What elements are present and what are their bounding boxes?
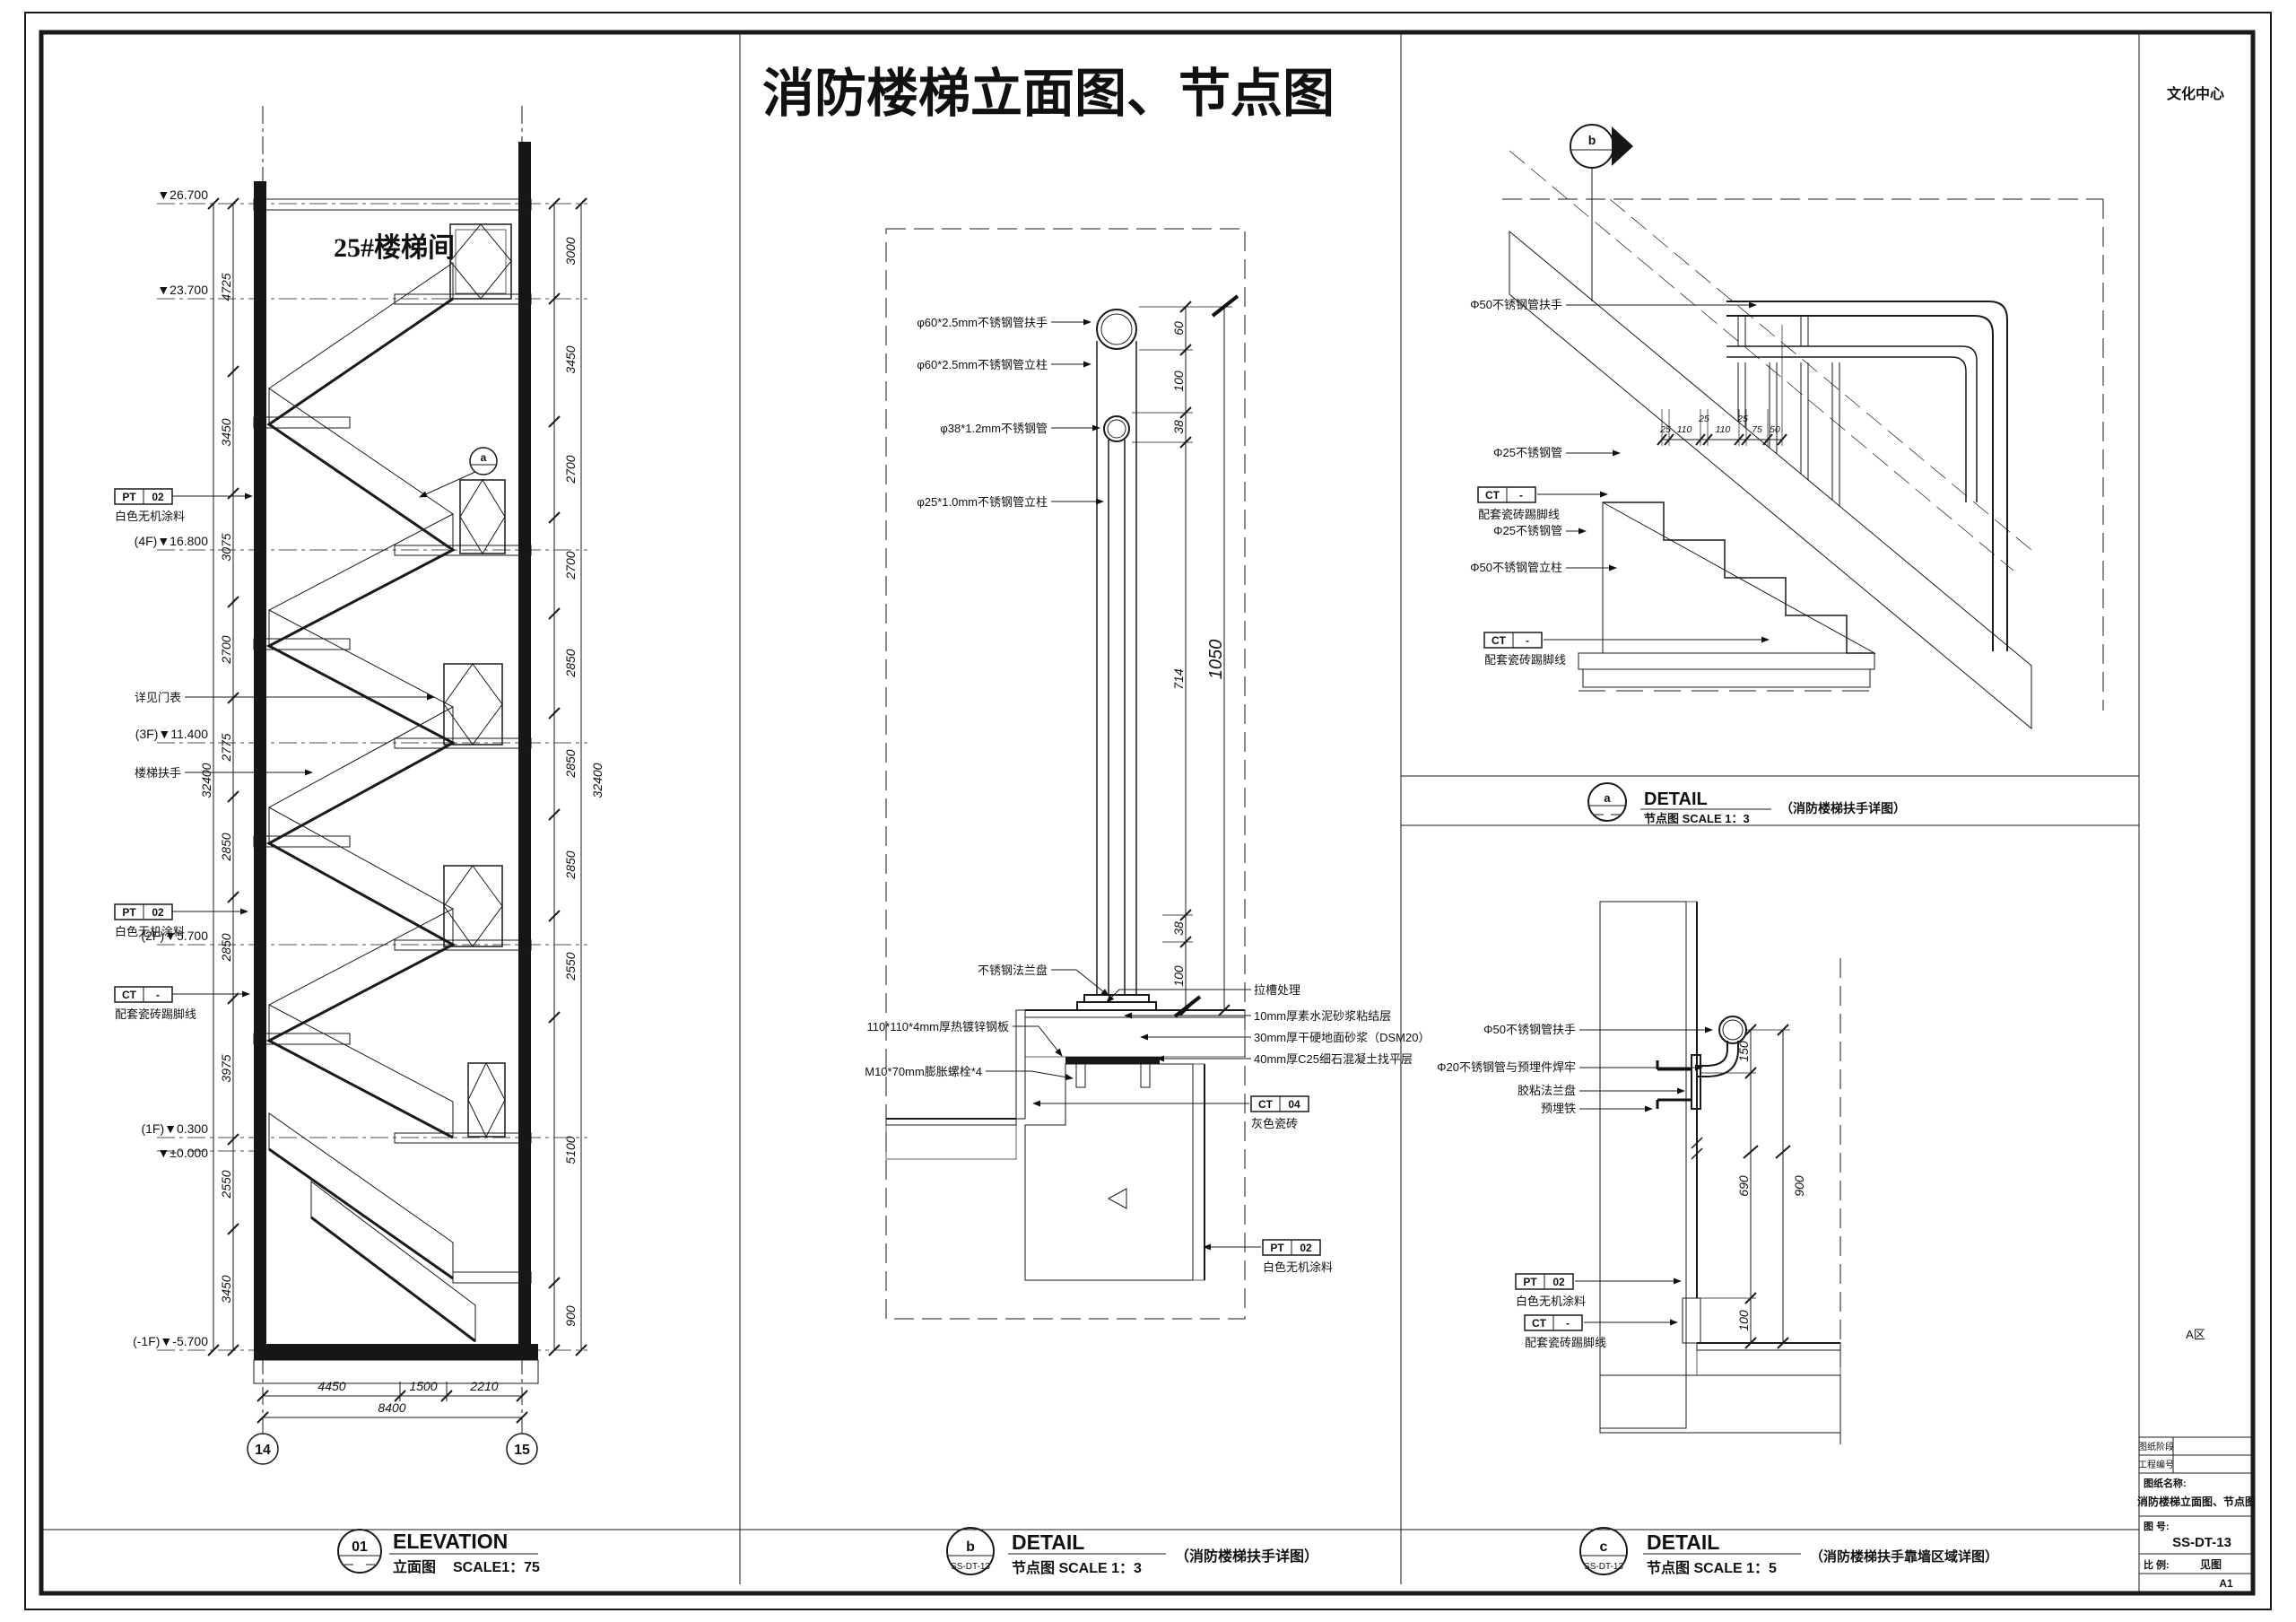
elevation-title: 01 ELEVATION 立面图 SCALE1：75 [338,1530,540,1575]
callout-label: 预埋铁 [1541,1102,1576,1115]
grid-number: 15 [514,1443,530,1458]
sheet-canvas: 消防楼梯立面图、节点图 [0,0,2296,1622]
dim-label: 25 [1698,414,1709,424]
dim-label: 2700 [563,551,578,580]
finish-tag-desc: 白色无机涂料 [115,510,185,523]
dim-label: 900 [563,1305,578,1327]
dim-label: 3450 [219,1275,233,1303]
finish-tag-code: CT [122,989,137,1001]
field-label: 图纸阶段 [2138,1441,2174,1452]
view-title-note: （消防楼梯扶手靠墙区域详图） [1810,1548,1998,1565]
dim-label: 2550 [219,1170,233,1199]
field-label: 比 例: [2144,1558,2170,1571]
finish-tag-num: 02 [1552,1276,1565,1288]
finish-tag-desc: 配套瓷砖踢脚线 [115,1007,196,1021]
floor-slabs [395,294,531,1143]
level-mark: (4F)▼16.800 [135,534,209,548]
handrail [1726,301,2007,651]
finish-tag-desc: 灰色瓷砖 [1251,1117,1298,1130]
elevator-doors [444,224,511,1137]
dim-label: 3000 [563,237,578,265]
wall-section [1600,902,1702,1428]
grid-bubbles: 14 15 [248,1434,537,1464]
finish-tag-code: PT [1270,1242,1284,1254]
view-title-en: DETAIL [1012,1530,1084,1554]
finish-tag-code: CT [1485,489,1500,501]
level-mark: (3F)▼11.400 [135,727,209,741]
dim-label: 2850 [219,833,233,861]
view-title-cn: 节点图 SCALE 1：5 [1647,1559,1777,1576]
finish-tag-desc: 配套瓷砖踢脚线 [1484,653,1566,667]
callout-label: Φ20不锈钢管与预埋件焊牢 [1437,1060,1576,1074]
finish-tag-desc: 白色无机涂料 [1516,1295,1586,1308]
roof-slab [254,199,531,210]
project-name: 文化中心 [2167,85,2224,102]
dim-label: 690 [1736,1175,1751,1197]
finish-tag-num: 02 [152,491,164,503]
finish-tag-num: - [1526,634,1529,647]
dim-label: 100 [1171,371,1186,392]
dim-label: 75 [1752,424,1762,435]
section-flag [1612,126,1633,166]
detail-c-title: c SS-DT-13 DETAIL 节点图 SCALE 1：5 （消防楼梯扶手靠… [1580,1528,1998,1576]
field-label: 图纸名称: [2144,1477,2187,1489]
finish-tag-code: PT [122,906,136,919]
overall-dim: 900 [1792,1175,1806,1197]
right-wall [518,142,531,1350]
callout-label: 胶粘法兰盘 [1518,1084,1576,1097]
room-label: 25#楼梯间 [334,233,455,263]
floor-buildup [886,1010,1245,1280]
dim-label: 38 [1171,921,1186,936]
finish-tag-code: PT [122,491,136,503]
dim-label: 2210 [469,1379,498,1393]
section-bubble: b [1570,125,1633,301]
view-number: 01 [352,1539,368,1555]
title-block: 文化中心 A区 图纸阶段 工程编号 图纸名称: 消防楼梯立面图、节点图 图 号:… [2137,85,2256,1590]
drawing-sheet: 消防楼梯立面图、节点图 [0,0,2296,1622]
callout-label: φ60*2.5mm不锈钢管立柱 [917,358,1048,371]
finish-tag-num: - [156,989,160,1001]
callout-label: Φ50不锈钢管立柱 [1470,561,1562,574]
view-title-en: ELEVATION [393,1530,508,1553]
grid-number: 14 [255,1443,271,1458]
view-title-cn: 节点图 SCALE 1：3 [1012,1559,1142,1576]
dim-label: 1500 [409,1379,437,1393]
base-slab [254,1344,538,1360]
view-ref: SS-DT-13 [951,1562,990,1572]
callout-label: Φ25不锈钢管 [1493,446,1562,459]
finish-tag-desc: 白色无机涂料 [1263,1260,1333,1274]
panel-dividers [740,32,2139,1593]
dim-label: 714 [1171,668,1186,690]
dim-label: 60 [1171,321,1186,336]
view-number: c [1600,1539,1608,1555]
field-label: 工程编号 [2138,1459,2174,1470]
overall-dim: 32400 [590,763,604,798]
level-mark: (-1F)▼-5.700 [133,1334,208,1348]
detail-a-callouts: Φ50不锈钢管扶手 Φ25不锈钢管 CT - 配套瓷砖踢脚线 Φ25不锈钢管 Φ… [1470,298,1769,667]
overall-dim: 8400 [378,1400,405,1415]
dim-label: 110 [1716,424,1731,435]
zone-label: A区 [2186,1328,2205,1341]
dim-label: 3975 [219,1054,233,1082]
field-label: 图 号: [2144,1521,2170,1532]
floor-section [1600,1343,1840,1433]
dim-label: 25 [1736,414,1748,424]
finish-tag-num: 04 [1288,1098,1300,1111]
detail-a-dimensions: 25 110 25 110 25 75 50 [1657,325,1787,446]
stair-flights [269,263,475,1341]
detail-a-band-lines [1401,776,2139,825]
callout-label: φ38*1.2mm不锈钢管 [940,422,1048,435]
dim-label: 38 [1171,420,1186,434]
callout-label: φ25*1.0mm不锈钢管立柱 [917,495,1048,509]
view-title-cn: 节点图 SCALE 1：3 [1644,812,1750,825]
drawing-name: 消防楼梯立面图、节点图 [2137,1495,2256,1508]
elevation-panel: 4725 3450 3075 2700 2775 2850 2850 3975 … [115,106,604,1575]
detail-a-panel: b 25 110 25 110 25 75 50 Φ50不锈钢管扶手 Φ25不锈… [1470,125,2103,825]
landing-slabs [254,417,531,1283]
dim-label: 3075 [219,533,233,561]
level-mark: ▼±0.000 [157,1146,208,1160]
drawing-number: SS-DT-13 [2172,1535,2231,1550]
dim-label: 3450 [563,345,578,373]
view-title-cn: 立面图 [393,1558,436,1575]
dim-label: 150 [1736,1041,1751,1062]
callout-label: 10mm厚素水泥砂浆粘结层 [1254,1009,1391,1023]
callout-label: 拉槽处理 [1254,983,1300,997]
callout-label: 40mm厚C25细石混凝土找平层 [1254,1052,1413,1066]
callout-label: 30mm厚干硬地面砂浆（DSM20） [1254,1031,1430,1044]
dim-label: 4725 [219,273,233,301]
level-mark: ▼23.700 [157,283,208,297]
section-id: b [1588,133,1596,147]
dim-label: 2550 [563,952,578,981]
finish-tag-code: PT [1523,1276,1537,1288]
detail-b-callouts-left: φ60*2.5mm不锈钢管扶手 φ60*2.5mm不锈钢管立柱 φ38*1.2m… [865,316,1109,1078]
finish-tag-num: 02 [1300,1242,1312,1254]
finish-tag-code: CT [1492,634,1507,647]
finish-tag-num: 02 [152,906,164,919]
left-wall [254,181,266,1350]
callout-label: Φ50不锈钢管扶手 [1470,298,1562,311]
dim-label: 50 [1770,424,1780,435]
dim-label: 2700 [219,635,233,664]
sheet-title: 消防楼梯立面图、节点图 [762,65,1335,123]
finish-tag-desc: 配套瓷砖踢脚线 [1478,508,1560,521]
note-rail: 楼梯扶手 [135,766,181,780]
view-title-note: （消防楼梯扶手详图） [1780,801,1906,815]
level-mark: (1F)▼0.300 [141,1121,208,1136]
dim-label: 2850 [563,649,578,677]
dim-label: 110 [1677,424,1692,435]
dim-label: 25 [1659,424,1671,435]
view-title-note: （消防楼梯扶手详图） [1175,1548,1318,1565]
callout-label: Φ50不锈钢管扶手 [1483,1023,1576,1036]
dim-label: 4450 [317,1379,345,1393]
callout-label: M10*70mm膨胀螺栓*4 [865,1065,982,1078]
dim-label: 2850 [563,850,578,879]
dim-label: 3450 [219,418,233,446]
scale-value: 见图 [2200,1558,2222,1571]
note-door: 详见门表 [135,691,181,704]
dim-label: 100 [1171,965,1186,987]
detail-callout-id: a [481,451,487,464]
detail-c-panel: 150 690 100 900 Φ50不锈钢管扶手 Φ20不锈钢管与预埋件焊牢 … [1437,902,1998,1576]
dim-label: 100 [1736,1310,1751,1331]
detail-b-dimensions: 60 100 38 714 38 100 1050 [1132,296,1238,1016]
detail-b-callouts-right: 拉槽处理 10mm厚素水泥砂浆粘结层 30mm厚干硬地面砂浆（DSM20） 40… [1033,983,1430,1274]
view-title-en: DETAIL [1647,1530,1719,1554]
dim-label: 2775 [219,733,233,762]
callout-label: Φ25不锈钢管 [1493,524,1562,537]
overall-dim: 1050 [1206,640,1226,680]
dim-label: 2850 [563,749,578,778]
overall-dim: 32400 [199,763,213,798]
view-number: a [1604,791,1611,805]
finish-tag-desc: 配套瓷砖踢脚线 [1525,1336,1606,1349]
sheet-size: A1 [2219,1577,2233,1590]
detail-b-title: b SS-DT-13 DETAIL 节点图 SCALE 1：3 （消防楼梯扶手详… [947,1528,1318,1576]
view-scale: SCALE1：75 [453,1560,540,1575]
view-number: b [966,1539,975,1555]
dim-label: 5100 [563,1136,578,1164]
dim-label: 2700 [563,455,578,484]
finish-tag-code: CT [1258,1098,1274,1111]
detail-b-panel: 60 100 38 714 38 100 1050 φ60*2.5mm不锈钢管扶… [865,229,1430,1576]
detail-c-callouts: Φ50不锈钢管扶手 Φ20不锈钢管与预埋件焊牢 胶粘法兰盘 预埋铁 PT 02 … [1437,1023,1712,1349]
detail-a-title: a DETAIL 节点图 SCALE 1：3 （消防楼梯扶手详图） [1588,783,1906,825]
dim-label: 2850 [219,933,233,962]
callout-label: φ60*2.5mm不锈钢管扶手 [917,316,1048,329]
detail-boundary [886,229,1245,1319]
detail-c-dimensions: 150 690 100 900 [1698,1025,1806,1348]
view-ref: SS-DT-13 [1584,1562,1623,1572]
finish-tag-code: CT [1532,1317,1547,1330]
handrail-post [1077,310,1156,1010]
callout-label: 110*110*4mm厚热镀锌钢板 [867,1020,1009,1033]
callout-label: 不锈钢法兰盘 [978,964,1048,977]
finish-tag-num: - [1566,1317,1570,1330]
finish-tag-desc: 白色无机涂料 [115,925,185,938]
level-mark: ▼26.700 [157,187,208,202]
finish-tag-num: - [1519,489,1523,501]
view-title-en: DETAIL [1644,789,1708,809]
